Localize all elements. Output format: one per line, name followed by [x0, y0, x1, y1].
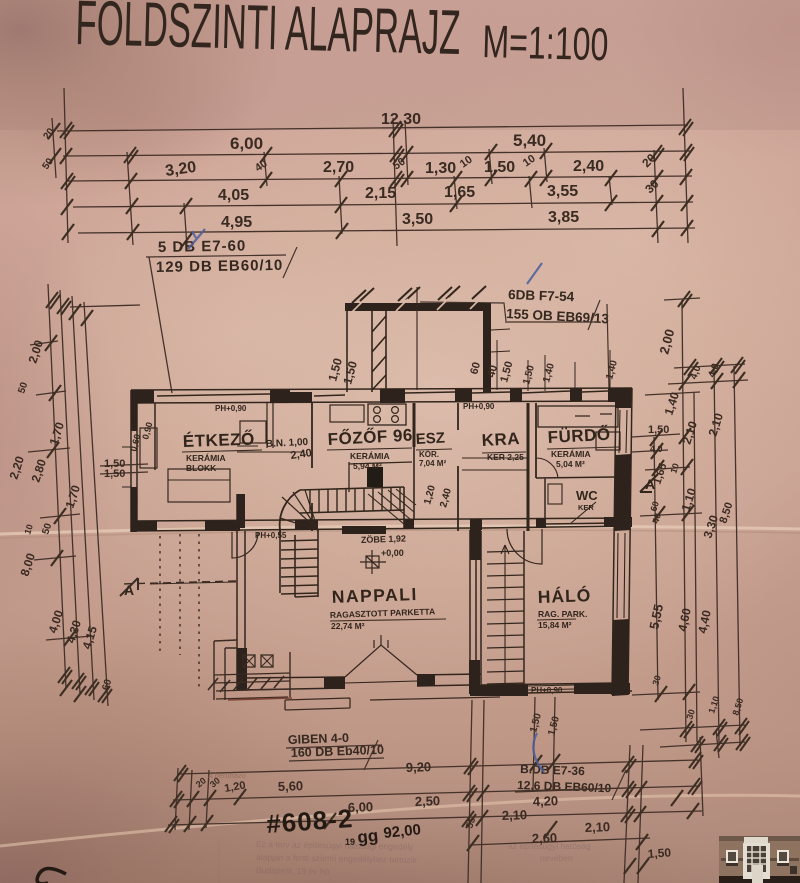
svg-text:FÜRDŐ: FÜRDŐ — [547, 425, 611, 447]
svg-text:WC: WC — [576, 488, 598, 503]
svg-text:5,94 M²: 5,94 M² — [353, 461, 382, 471]
svg-text:PH+0,90: PH+0,90 — [531, 686, 563, 695]
svg-text:KER: KER — [578, 503, 594, 512]
svg-text:3,55: 3,55 — [547, 183, 578, 200]
svg-text:4,20: 4,20 — [533, 793, 559, 809]
svg-text:Budapest, 19 év: Budapest, 19 év hó — [256, 865, 330, 876]
svg-text:PH+0,90: PH+0,90 — [463, 402, 495, 411]
svg-text:+0,00: +0,00 — [381, 548, 404, 558]
svg-text:2,15: 2,15 — [365, 185, 396, 202]
svg-text:2,10: 2,10 — [502, 807, 528, 823]
svg-text:15,84 M²: 15,84 M² — [538, 620, 572, 630]
svg-text:6,00: 6,00 — [230, 134, 263, 153]
svg-text:1,50: 1,50 — [484, 159, 515, 176]
svg-text:KÖR.: KÖR. — [419, 450, 439, 459]
svg-text:RAG. PARK.: RAG. PARK. — [538, 609, 587, 619]
svg-text:129 DB EB60/10: 129 DB EB60/10 — [156, 257, 284, 276]
svg-text:4,05: 4,05 — [218, 187, 249, 204]
svg-text:KERÁMIA: KERÁMIA — [350, 451, 390, 461]
svg-text:M=1:100: M=1:100 — [482, 15, 609, 70]
svg-text:PH+0,90: PH+0,90 — [215, 404, 247, 413]
svg-text:A: A — [645, 476, 655, 492]
svg-text:9,20: 9,20 — [406, 759, 432, 775]
svg-text:2,70: 2,70 — [323, 159, 354, 176]
svg-text:KER 2,25: KER 2,25 — [487, 452, 524, 462]
svg-text:KERÁMIA: KERÁMIA — [186, 453, 226, 463]
svg-text:22,74 M²: 22,74 M² — [331, 621, 365, 631]
svg-text:HÁLÓ: HÁLÓ — [537, 584, 591, 607]
svg-text:7,04 M²: 7,04 M² — [419, 459, 446, 468]
svg-text:ÉTKEZŐ: ÉTKEZŐ — [182, 429, 255, 450]
svg-text:1,65: 1,65 — [444, 184, 475, 201]
svg-text:KERÁMIA: KERÁMIA — [551, 449, 591, 459]
svg-text:3,85: 3,85 — [548, 209, 579, 226]
svg-text:5,60: 5,60 — [278, 778, 304, 794]
svg-text:4,0: 4,0 — [650, 444, 663, 454]
svg-text:2,40: 2,40 — [573, 158, 604, 175]
svg-text:PH+0,55: PH+0,55 — [255, 531, 287, 540]
svg-text:ESZ: ESZ — [415, 429, 445, 448]
svg-text:1,50: 1,50 — [647, 845, 672, 861]
svg-text:2,50: 2,50 — [415, 793, 441, 809]
svg-text:3,50: 3,50 — [402, 211, 433, 228]
svg-text:5 DB E7-60: 5 DB E7-60 — [158, 237, 247, 256]
svg-text:1,30: 1,30 — [425, 160, 456, 177]
svg-text:KRA: KRA — [481, 429, 520, 450]
svg-text:A: A — [124, 582, 134, 598]
svg-text:5,40: 5,40 — [513, 131, 546, 150]
svg-text:2,10: 2,10 — [585, 819, 611, 835]
svg-text:4,95: 4,95 — [221, 214, 252, 231]
svg-text:az építésügyi hatóság: az építésügyi hatóság — [508, 841, 591, 851]
svg-text:BLOKK: BLOKK — [186, 463, 217, 473]
svg-text:5,04 M²: 5,04 M² — [556, 459, 585, 469]
svg-text:#608-2: #608-2 — [265, 803, 354, 839]
svg-text:nevében: nevében — [540, 853, 573, 863]
svg-text:1,50: 1,50 — [648, 424, 669, 436]
svg-text:A beruházó: A beruházó — [208, 771, 246, 780]
svg-text:FÖLDSZINTI ALAPRAJZ: FÖLDSZINTI ALAPRAJZ — [75, 0, 462, 68]
svg-text:1,50: 1,50 — [104, 458, 125, 470]
svg-text:ZÖBE 1,92: ZÖBE 1,92 — [361, 533, 406, 545]
svg-text:6DB F7-54: 6DB F7-54 — [508, 287, 575, 304]
svg-text:12,30: 12,30 — [381, 111, 421, 128]
svg-text:NAPPALI: NAPPALI — [331, 584, 418, 607]
